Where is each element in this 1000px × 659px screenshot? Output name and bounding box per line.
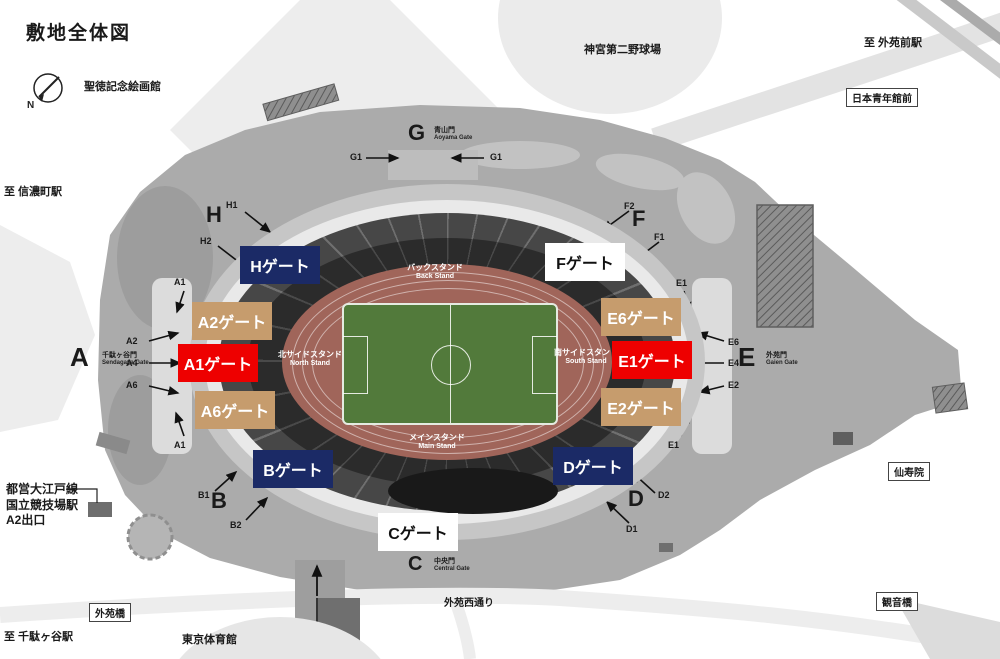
label-baseball-ground: 神宮第二野球場 xyxy=(584,41,661,57)
arrow-label-e4: E4 xyxy=(728,358,739,368)
arrow-label-e1-bottom: E1 xyxy=(668,440,679,450)
oedo-exit-name: A2出口 xyxy=(6,513,78,529)
gaien-nishi-street-road xyxy=(0,596,1000,648)
back-stand-jp: バックスタンド xyxy=(375,263,495,273)
label-senjuin: 仙寿院 xyxy=(888,462,930,481)
gate-box-e1: E1ゲート xyxy=(612,341,692,379)
baseball-ground-area xyxy=(498,0,722,114)
arrow-label-a1-bottom: A1 xyxy=(174,440,186,450)
arrow-label-a1-top: A1 xyxy=(174,277,186,287)
entrance-g-name-en: Aoyama Gate xyxy=(434,135,472,142)
gate-box-d: Dゲート xyxy=(553,447,633,485)
entrance-g-name-jp: 青山門 xyxy=(434,127,472,135)
compass-icon: N xyxy=(27,74,62,111)
arrow-label-a4: A4 xyxy=(126,358,138,368)
entrance-e-name-en: Gaien Gate xyxy=(766,360,798,367)
entrance-b-letter: B xyxy=(211,490,227,512)
gate-box-h: Hゲート xyxy=(240,246,320,284)
back-stand-label: バックスタンド Back Stand xyxy=(375,263,495,281)
entrance-c-name-jp: 中央門 xyxy=(434,558,470,566)
garden-feature xyxy=(128,515,172,559)
entrance-h-letter: H xyxy=(206,204,222,226)
east-building xyxy=(757,205,813,327)
arrow-label-g1-left: G1 xyxy=(350,152,362,162)
main-stand-jp: メインスタンド xyxy=(377,433,497,443)
arrow-label-a6: A6 xyxy=(126,380,138,390)
entrance-f-letter: F xyxy=(632,208,645,230)
field-center-circle xyxy=(431,345,471,385)
gate-box-e6: E6ゲート xyxy=(601,298,681,336)
gate-box-c: Cゲート xyxy=(378,513,458,551)
label-gaien-bridge: 外苑橋 xyxy=(89,603,131,622)
label-museum: 聖徳記念絵画館 xyxy=(84,78,161,94)
arrow-label-e6: E6 xyxy=(728,337,739,347)
gate-box-f: Fゲート xyxy=(545,243,625,281)
arrow-label-b2: B2 xyxy=(230,520,242,530)
entrance-g-letter: G xyxy=(408,122,425,144)
label-kannon-bridge: 観音橋 xyxy=(876,592,918,611)
compass-north-label: N xyxy=(27,100,34,111)
gate-box-e2: E2ゲート xyxy=(601,388,681,426)
main-stand-label: メインスタンド Main Stand xyxy=(377,433,497,451)
arrow-label-d2: D2 xyxy=(658,490,670,500)
entrance-c-letter: C xyxy=(408,554,422,574)
north-stand-label: 北サイドスタンド North Stand xyxy=(250,350,370,368)
label-gaien-nishi-street: 外苑西通り xyxy=(444,594,494,609)
arrow-label-e1-top: E1 xyxy=(676,278,687,288)
label-oedo-line-exit: 都営大江戸線 国立競技場駅 A2出口 xyxy=(6,482,78,529)
entrance-c-name: 中央門 Central Gate xyxy=(434,558,470,573)
arrow-label-b1: B1 xyxy=(198,490,210,500)
entrance-g-name: 青山門 Aoyama Gate xyxy=(434,127,472,142)
label-nippon-seinenkan: 日本青年館前 xyxy=(846,88,918,107)
label-to-sendagaya: 至 千駄ヶ谷駅 xyxy=(4,628,73,644)
arrow-label-h2: H2 xyxy=(200,236,212,246)
entrance-d-letter: D xyxy=(628,488,644,510)
main-stand-roof xyxy=(388,468,558,514)
entrance-e-name-jp: 外苑門 xyxy=(766,352,798,360)
label-tokyo-gymnasium: 東京体育館 xyxy=(182,631,237,647)
arrow-label-f1: F1 xyxy=(654,232,665,242)
gate-box-a2: A2ゲート xyxy=(192,302,272,340)
left-park-strip xyxy=(0,225,95,432)
entrance-e-letter: E xyxy=(738,344,755,370)
site-map: N 敷地全体図 聖徳記念絵画館 神宮第二野球場 至 外苑前駅 xyxy=(0,0,1000,659)
entrance-c-name-en: Central Gate xyxy=(434,566,470,573)
label-to-gaienmae: 至 外苑前駅 xyxy=(864,34,922,50)
page-title: 敷地全体図 xyxy=(26,18,131,45)
gate-box-a6: A6ゲート xyxy=(195,391,275,429)
back-stand-en: Back Stand xyxy=(375,273,495,281)
oedo-line-name: 都営大江戸線 xyxy=(6,482,78,498)
label-to-shinanomachi: 至 信濃町駅 xyxy=(4,183,62,199)
entrance-a-letter: A xyxy=(70,344,89,370)
arrow-label-d1: D1 xyxy=(626,524,638,534)
gate-box-a1: A1ゲート xyxy=(178,344,258,382)
entrance-e-name: 外苑門 Gaien Gate xyxy=(766,352,798,367)
north-stand-jp: 北サイドスタンド xyxy=(250,350,370,360)
oedo-exit-structure xyxy=(88,502,112,517)
arrow-label-a2: A2 xyxy=(126,336,138,346)
oedo-station-name: 国立競技場駅 xyxy=(6,498,78,514)
arrow-label-e2: E2 xyxy=(728,380,739,390)
north-stand-en: North Stand xyxy=(250,360,370,368)
arrow-label-g1-right: G1 xyxy=(490,152,502,162)
main-stand-en: Main Stand xyxy=(377,443,497,451)
gate-box-b: Bゲート xyxy=(253,450,333,488)
arrow-label-h1: H1 xyxy=(226,200,238,210)
arrow-label-f2: F2 xyxy=(624,201,635,211)
gate-g-plaza xyxy=(388,150,478,180)
